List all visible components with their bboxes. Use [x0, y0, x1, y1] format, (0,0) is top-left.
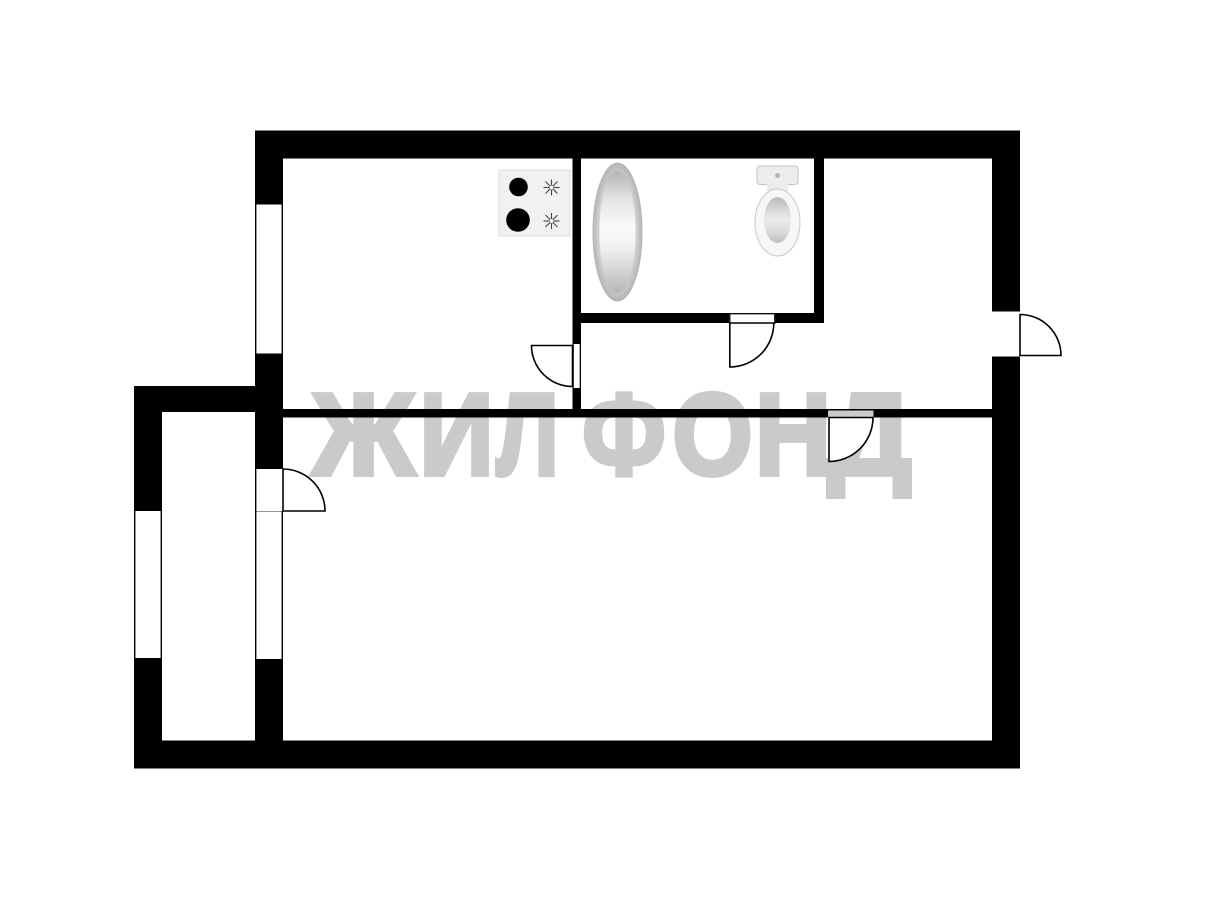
svg-text:О: О: [673, 370, 753, 500]
svg-text:И: И: [420, 370, 494, 500]
svg-text:Ж: Ж: [312, 370, 416, 500]
svg-text:Л: Л: [497, 370, 559, 500]
svg-text:Ф: Ф: [583, 370, 666, 500]
svg-text:Н: Н: [755, 370, 831, 500]
